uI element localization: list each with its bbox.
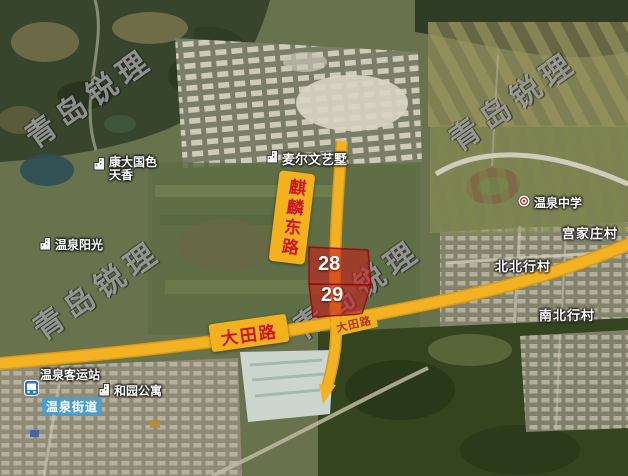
bus-icon [24, 380, 39, 399]
school-badge-icon [517, 194, 531, 211]
parcel-29-number[interactable]: 29 [321, 284, 343, 307]
poi-label: 麦尔文艺墅 [282, 149, 347, 168]
poi-maierwen-villa[interactable]: 麦尔文艺墅 [266, 149, 347, 168]
poi-label: 温泉阳光 [55, 236, 103, 253]
road-end-tip [319, 384, 336, 404]
poi-beibeixing-village[interactable]: 北北行村 [495, 256, 551, 275]
poi-label: 温泉客运站 [40, 366, 100, 383]
poi-label-line2: 天香 [109, 169, 157, 182]
building-icon [39, 236, 52, 254]
poi-kangda-guose-tianxiang[interactable]: 康大国色 天香 [93, 156, 157, 182]
poi-heyuan-apartments[interactable]: 和园公寓 [98, 382, 162, 400]
poi-label: 康大国色 天香 [109, 156, 157, 182]
building-icon [266, 149, 279, 167]
poi-nanbeixing-village[interactable]: 南北行村 [539, 305, 595, 324]
building-icon [93, 156, 106, 174]
parcel-28-number[interactable]: 28 [318, 253, 340, 276]
wenquan-subdistrict-badge[interactable]: 温泉街道 [42, 397, 102, 415]
poi-label: 宫家庄村 [562, 223, 618, 242]
poi-label: 北北行村 [495, 256, 551, 275]
poi-gongjiazhuang-village[interactable]: 宫家庄村 [562, 223, 618, 242]
satellite-map-canvas[interactable]: 青岛锐理 青岛锐理 青岛锐理 青岛锐理 麒麟东路 大田路 大田路 28 29 康… [0, 0, 628, 476]
poi-label: 温泉中学 [534, 194, 582, 211]
poi-wenquan-sunshine[interactable]: 温泉阳光 [39, 236, 103, 254]
poi-wenquan-middle-school[interactable]: 温泉中学 [517, 194, 582, 211]
poi-label: 南北行村 [539, 305, 595, 324]
poi-label: 和园公寓 [114, 382, 162, 399]
